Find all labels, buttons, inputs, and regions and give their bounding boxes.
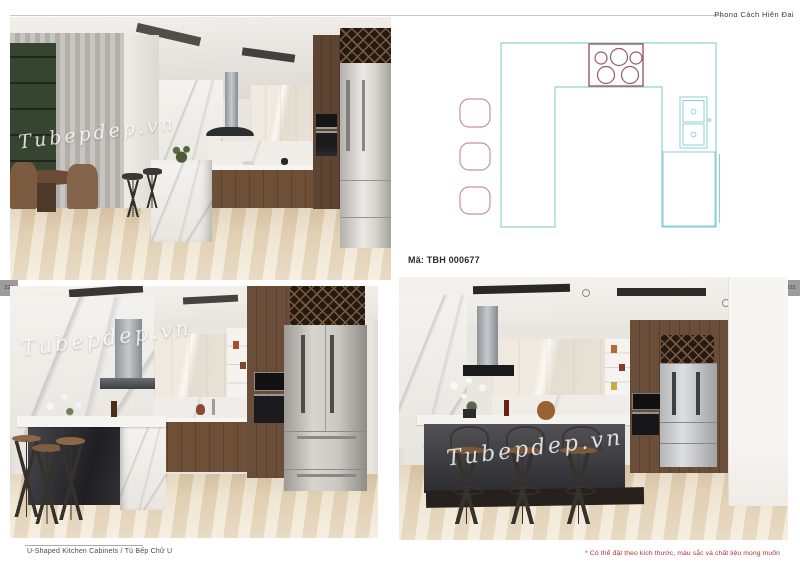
photo-kitchen-bottom-right: Tubepdep.vn — [399, 277, 788, 540]
bar-stool-legs — [58, 445, 84, 521]
bar-stool-seat — [56, 437, 85, 445]
fridge-handle — [346, 80, 349, 151]
fridge-drawer-handle — [297, 436, 356, 439]
customization-note: * Có thể đặt theo kích thước, màu sắc và… — [585, 550, 780, 557]
wine-rack-lattice — [340, 28, 391, 64]
bar-stool-legs — [144, 174, 160, 208]
range-hood — [206, 127, 254, 136]
header-rule — [10, 15, 723, 16]
wine-rack-lattice — [661, 335, 715, 364]
fridge-handle — [696, 372, 700, 415]
fridge-handle — [672, 372, 676, 415]
fridge-drawer-split — [284, 431, 367, 432]
plan-code-label: Mã: TBH 000677 — [408, 255, 480, 265]
refrigerator — [660, 363, 718, 467]
base-cabinets — [154, 422, 250, 472]
fridge-door-split — [325, 325, 326, 431]
wooden-board — [537, 401, 555, 421]
plan-sink-icon — [680, 97, 711, 148]
open-shelf-unit — [605, 339, 630, 397]
built-in-microwave — [316, 114, 337, 129]
wine-rack-lattice — [290, 286, 365, 325]
fridge-door-split — [340, 217, 391, 218]
plan-fridge-icon — [663, 152, 720, 226]
dining-chair — [10, 162, 37, 209]
bar-stool-legs — [34, 451, 60, 524]
range-hood — [463, 365, 514, 376]
faucet — [212, 399, 215, 414]
caption-rule — [25, 545, 143, 546]
floor-plan: Mã: TBH 000677 — [399, 17, 790, 270]
floor-plan-svg — [399, 17, 790, 270]
fridge-handle — [330, 335, 334, 413]
ceiling-vent-strip — [617, 288, 706, 296]
hood-chimney — [225, 72, 238, 129]
island-waterfall-panel — [120, 427, 166, 510]
shelf-jar — [240, 362, 246, 370]
shelf-jar — [611, 345, 617, 352]
range-hood — [100, 378, 155, 389]
bottle — [111, 401, 117, 417]
side-wall — [728, 277, 788, 506]
caption-title: U-Shaped Kitchen Cabinets / Tủ Bếp Chữ U — [27, 548, 172, 555]
fridge-drawer-handle — [297, 474, 356, 477]
fridge-drawer-split — [660, 443, 718, 444]
fridge-handle — [301, 335, 305, 413]
kettle — [281, 158, 289, 164]
built-in-oven — [316, 131, 337, 155]
photo-kitchen-bottom-left: Tubepdep.vn — [10, 286, 378, 538]
plan-counter-outline — [501, 43, 716, 227]
fridge-drawer-split — [660, 422, 718, 423]
bar-stool-legs — [124, 180, 142, 217]
fridge-drawer-split — [284, 469, 367, 470]
upper-cabinets — [250, 85, 313, 140]
backsplash — [208, 141, 313, 169]
flower-decor — [39, 389, 94, 418]
plan-stools-icon — [460, 99, 490, 214]
upper-cabinets — [154, 334, 228, 397]
hood-chimney — [477, 306, 498, 366]
shelf-jar — [233, 341, 239, 349]
built-in-microwave — [254, 372, 287, 392]
base-cabinets — [208, 170, 313, 208]
countertop — [152, 418, 251, 422]
plant-decor — [170, 142, 193, 163]
recessed-light — [582, 289, 590, 297]
clay-pot — [196, 404, 205, 414]
built-in-microwave — [632, 393, 660, 410]
dining-table-base — [37, 183, 56, 212]
shelf-jar — [619, 364, 625, 371]
built-in-oven — [632, 412, 658, 436]
countertop — [206, 165, 315, 169]
dining-chair — [67, 164, 97, 209]
catalog-page: Phong Cách Hiện Đại 324 325 — [0, 0, 800, 565]
plan-cooktop-icon — [589, 44, 643, 86]
orchid-pot — [463, 409, 475, 419]
shelf-jar — [611, 382, 617, 389]
built-in-oven — [254, 394, 285, 422]
fridge-handle — [362, 80, 365, 151]
fridge-door-split — [340, 180, 391, 181]
photo-kitchen-top-left: Tubepdep.vn — [10, 17, 391, 280]
bottle — [504, 400, 509, 416]
